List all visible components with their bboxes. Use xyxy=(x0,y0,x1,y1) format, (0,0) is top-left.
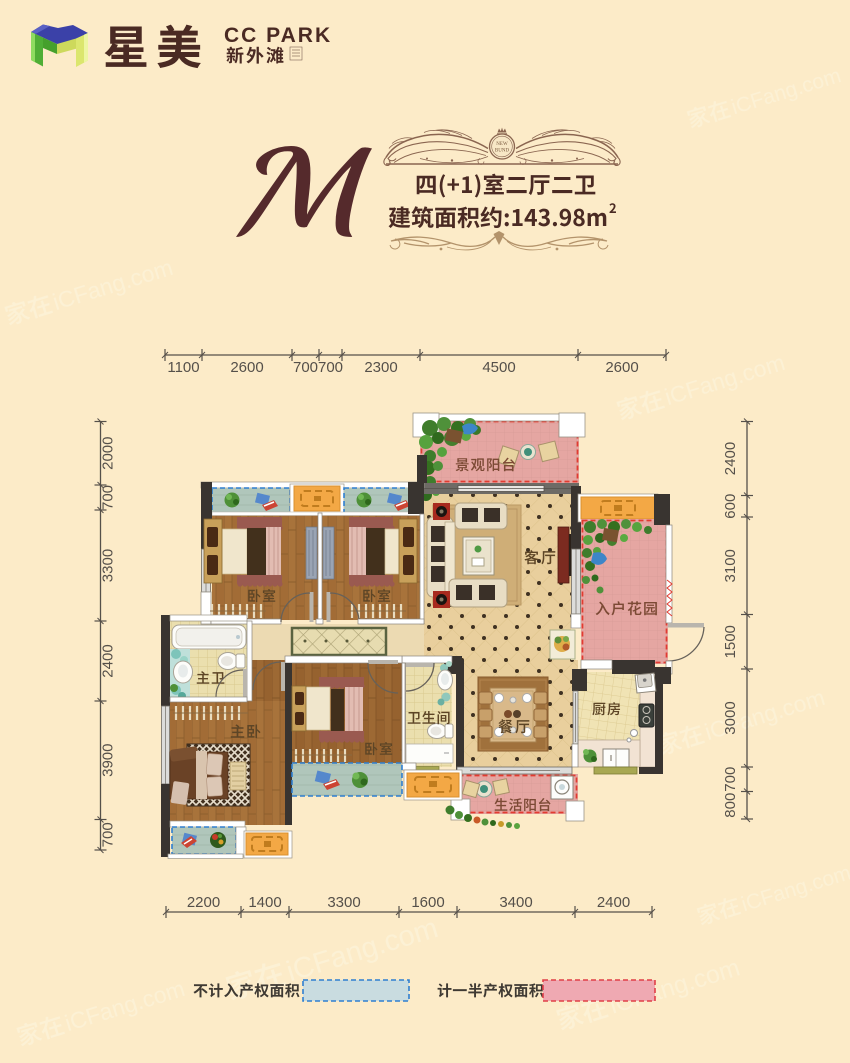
svg-text:2300: 2300 xyxy=(364,359,397,376)
svg-text:700: 700 xyxy=(100,822,117,847)
svg-text:2400: 2400 xyxy=(722,442,739,475)
svg-text:3000: 3000 xyxy=(722,701,739,734)
svg-text:4500: 4500 xyxy=(482,359,515,376)
svg-text:BUND: BUND xyxy=(495,149,510,154)
svg-text:700: 700 xyxy=(318,359,343,376)
svg-text:800: 800 xyxy=(722,793,739,818)
svg-text:3900: 3900 xyxy=(100,744,117,777)
svg-text:700: 700 xyxy=(293,359,318,376)
svg-text:NEW: NEW xyxy=(496,142,508,147)
svg-text:2600: 2600 xyxy=(230,359,263,376)
svg-text:3400: 3400 xyxy=(499,894,532,911)
svg-text:2200: 2200 xyxy=(187,894,220,911)
svg-text:700: 700 xyxy=(100,485,117,510)
svg-text:1600: 1600 xyxy=(411,894,444,911)
svg-text:2400: 2400 xyxy=(100,644,117,677)
svg-text:1100: 1100 xyxy=(167,359,199,376)
svg-text:1400: 1400 xyxy=(248,894,281,911)
svg-text:3100: 3100 xyxy=(722,549,739,582)
svg-text:700: 700 xyxy=(722,767,739,792)
svg-text:CC PARK: CC PARK xyxy=(224,24,332,47)
svg-text:3300: 3300 xyxy=(100,549,117,582)
svg-text:2400: 2400 xyxy=(597,894,630,911)
svg-text:2000: 2000 xyxy=(100,437,117,470)
svg-text:600: 600 xyxy=(722,494,739,519)
svg-text:2600: 2600 xyxy=(605,359,638,376)
svg-text:1500: 1500 xyxy=(722,625,739,658)
svg-text:3300: 3300 xyxy=(327,894,360,911)
